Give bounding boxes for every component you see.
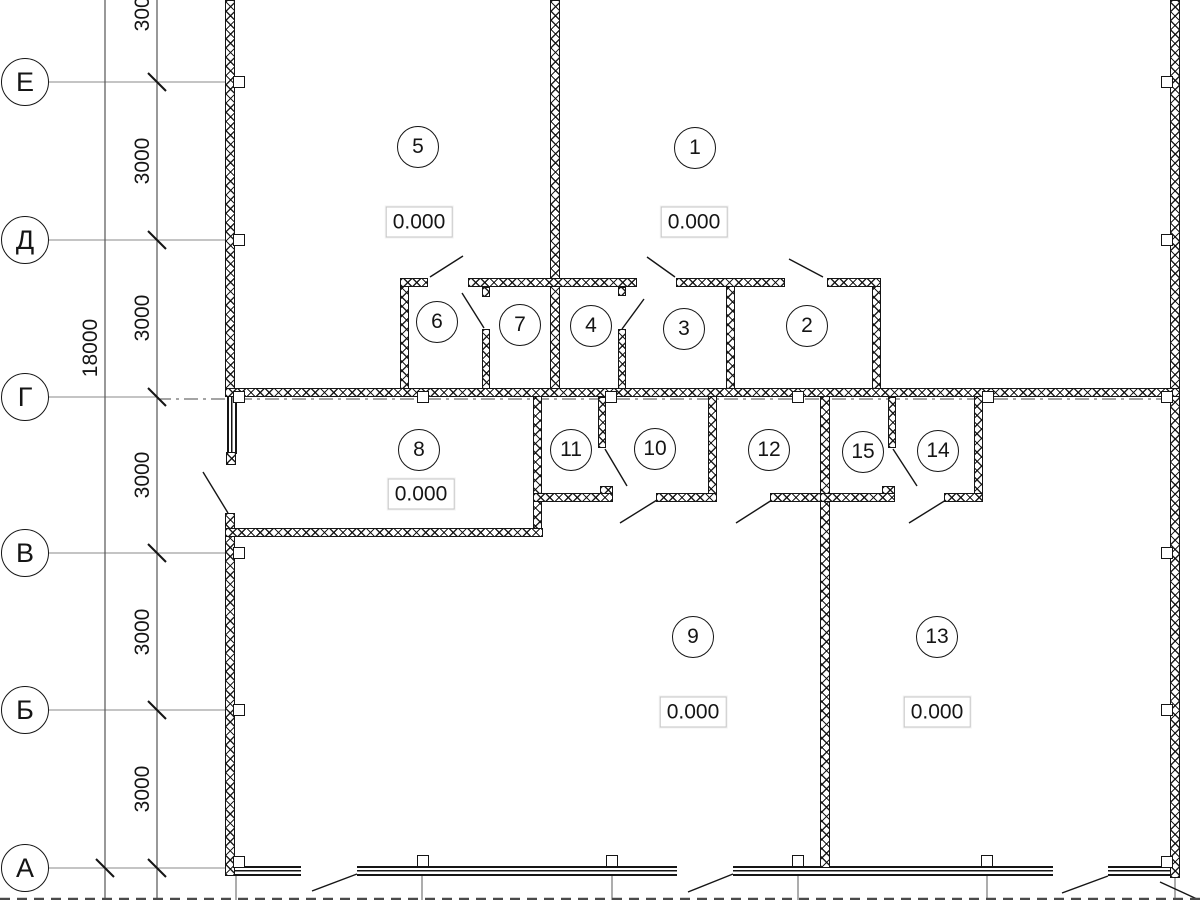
wall-segment — [550, 0, 560, 390]
axis-bubble-Д: Д — [1, 216, 49, 264]
axis-intersection-marker — [417, 855, 429, 867]
axis-intersection-marker — [233, 234, 245, 246]
wall-segment — [618, 287, 626, 296]
wall-segment — [600, 486, 613, 494]
axis-intersection-marker — [792, 855, 804, 867]
axis-bubble-А: А — [1, 844, 49, 892]
plan-linework — [0, 0, 1200, 900]
window-segment — [357, 866, 677, 876]
room-number-5: 5 — [397, 126, 439, 168]
room-number-11: 11 — [550, 429, 592, 471]
door-swing-line — [688, 874, 733, 892]
axis-bubble-В: В — [1, 529, 49, 577]
elevation-mark: 0.000 — [661, 207, 728, 238]
room-number-14: 14 — [917, 430, 959, 472]
dimension-text: 3000 — [131, 763, 155, 816]
wall-segment — [225, 528, 543, 537]
door-swing-line — [909, 500, 946, 523]
dimension-text: 3000 — [131, 292, 155, 345]
door-swing-line — [430, 256, 463, 277]
axis-intersection-marker — [1161, 547, 1173, 559]
axis-intersection-marker — [1161, 391, 1173, 403]
door-swing-line — [462, 293, 484, 328]
dimension-text: 3000 — [131, 449, 155, 502]
room-number-13: 13 — [916, 616, 958, 658]
axis-intersection-marker — [1161, 76, 1173, 88]
floor-plan-canvas: ЕДГВБА3000300030003000300030001800012345… — [0, 0, 1200, 900]
wall-segment — [888, 397, 896, 448]
wall-segment — [827, 278, 881, 287]
axis-intersection-marker — [233, 547, 245, 559]
axis-bubble-Г: Г — [1, 373, 49, 421]
room-number-8: 8 — [398, 429, 440, 471]
axis-intersection-marker — [982, 391, 994, 403]
wall-segment — [656, 493, 717, 502]
dimension-text: 3000 — [131, 0, 155, 34]
wall-segment — [225, 0, 235, 390]
wall-segment — [676, 278, 785, 287]
elevation-mark: 0.000 — [904, 697, 971, 728]
door-swing-line — [893, 449, 917, 486]
wall-segment — [944, 493, 983, 502]
room-number-15: 15 — [842, 431, 884, 473]
door-swing-line — [312, 874, 357, 891]
axis-bubble-Б: Б — [1, 686, 49, 734]
door-swing-line — [736, 500, 772, 523]
wall-segment — [226, 452, 236, 465]
axis-intersection-marker — [417, 391, 429, 403]
door-swing-line — [1062, 876, 1108, 893]
door-swing-line — [605, 449, 627, 486]
room-number-9: 9 — [672, 616, 714, 658]
axis-intersection-marker — [1161, 234, 1173, 246]
wall-segment — [482, 329, 490, 390]
wall-segment — [468, 278, 637, 287]
door-swing-line — [620, 500, 657, 523]
door-swing-line — [622, 299, 644, 329]
wall-segment — [482, 287, 490, 297]
elevation-mark: 0.000 — [388, 479, 455, 510]
axis-intersection-marker — [233, 391, 245, 403]
room-number-6: 6 — [416, 301, 458, 343]
wall-segment — [598, 397, 606, 448]
wall-segment — [533, 388, 542, 536]
axis-intersection-marker — [981, 855, 993, 867]
wall-segment — [618, 329, 626, 390]
door-swing-line — [1160, 882, 1197, 899]
wall-segment — [225, 513, 235, 876]
room-number-3: 3 — [663, 308, 705, 350]
wall-segment — [820, 388, 830, 868]
axis-intersection-marker — [792, 391, 804, 403]
wall-segment — [708, 388, 717, 498]
door-swing-line — [203, 472, 228, 513]
wall-segment — [225, 388, 1180, 397]
door-swing-line — [647, 257, 675, 277]
wall-segment — [872, 278, 881, 390]
wall-segment — [400, 278, 428, 287]
axis-intersection-marker — [233, 704, 245, 716]
room-number-12: 12 — [748, 429, 790, 471]
room-number-10: 10 — [634, 428, 676, 470]
elevation-mark: 0.000 — [660, 697, 727, 728]
axis-bubble-Е: Е — [1, 58, 49, 106]
room-number-1: 1 — [674, 127, 716, 169]
dimension-text: 3000 — [131, 606, 155, 659]
axis-intersection-marker — [1161, 856, 1173, 868]
axis-intersection-marker — [233, 856, 245, 868]
axis-intersection-marker — [233, 76, 245, 88]
elevation-mark: 0.000 — [386, 207, 453, 238]
door-swing-line — [789, 259, 823, 277]
window-segment — [227, 397, 237, 454]
wall-segment — [400, 278, 409, 390]
axis-intersection-marker — [605, 391, 617, 403]
room-number-4: 4 — [570, 305, 612, 347]
dimension-text: 18000 — [79, 316, 103, 380]
window-segment — [733, 866, 1053, 876]
wall-segment — [974, 388, 983, 498]
wall-segment — [882, 486, 895, 494]
dimension-text: 3000 — [131, 135, 155, 188]
room-number-7: 7 — [499, 304, 541, 346]
axis-intersection-marker — [1161, 704, 1173, 716]
wall-segment — [533, 493, 613, 502]
wall-segment — [1170, 0, 1180, 878]
wall-segment — [820, 493, 895, 502]
room-number-2: 2 — [786, 305, 828, 347]
wall-segment — [726, 278, 735, 390]
axis-intersection-marker — [606, 855, 618, 867]
